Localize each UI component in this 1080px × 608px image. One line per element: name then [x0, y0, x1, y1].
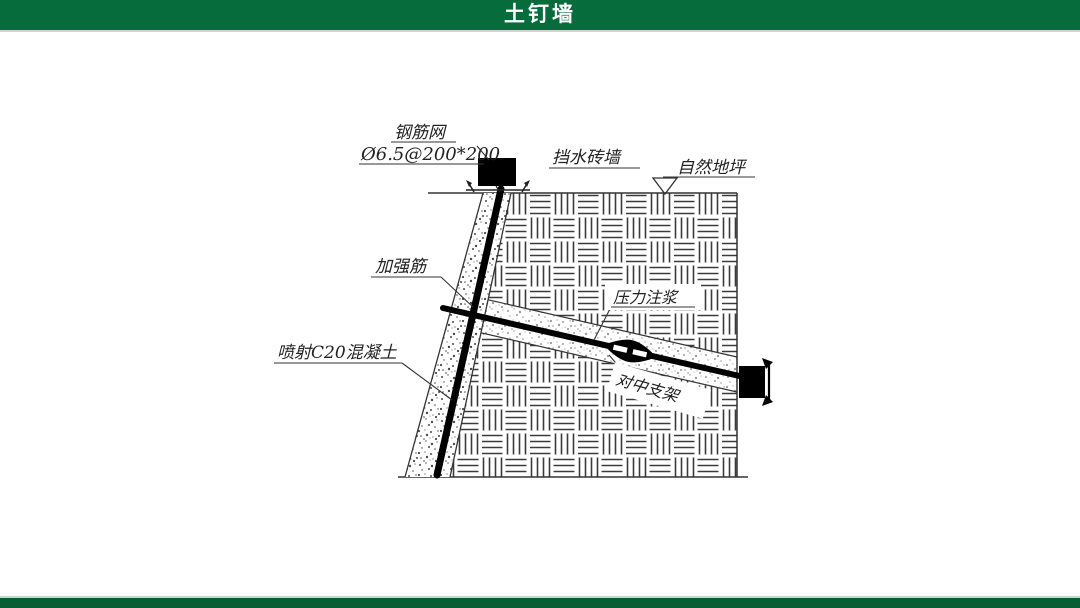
label-steel-mesh-spec: Ø6.5@200*200 [360, 144, 500, 165]
label-pressure-grouting: 压力注浆 [613, 288, 680, 307]
slide: 土钉墙 [0, 0, 1080, 608]
label-brick-wall: 挡水砖墙 [552, 148, 622, 168]
label-shotcrete: 喷射C20混凝土 [277, 343, 398, 363]
nail-end-anchor [739, 358, 773, 406]
label-steel-mesh: 钢筋网 [394, 123, 447, 143]
footer-bar [0, 596, 1080, 608]
anchor-plate-block [739, 366, 765, 398]
label-natural-ground: 自然地坪 [677, 158, 748, 178]
label-reinforcement-rib: 加强筋 [375, 257, 429, 277]
soil-nail-wall-diagram: 钢筋网 Ø6.5@200*200 挡水砖墙 自然地坪 加强筋 压力注浆 喷射C2… [0, 0, 1080, 608]
ground-level-marker-icon [653, 178, 677, 194]
